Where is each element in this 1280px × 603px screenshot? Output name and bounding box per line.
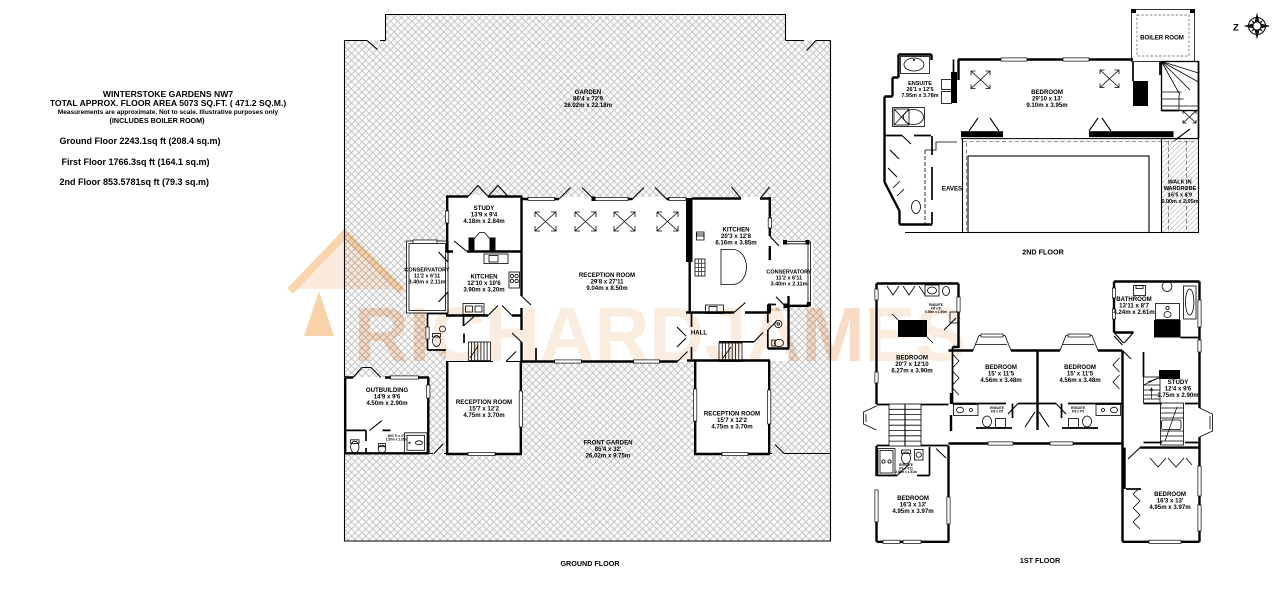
svg-text:6.27m x 3.90m: 6.27m x 3.90m	[891, 368, 933, 375]
svg-text:1ST FLOOR: 1ST FLOOR	[1020, 556, 1061, 565]
svg-text:1.50m x 1.35m: 1.50m x 1.35m	[386, 438, 408, 442]
svg-text:9.04m x 8.50m: 9.04m x 8.50m	[586, 285, 628, 292]
svg-text:BOILER ROOM: BOILER ROOM	[1140, 35, 1184, 42]
svg-text:26.02m x 22.18m: 26.02m x 22.18m	[564, 102, 613, 109]
svg-text:First Floor 1766.3sq ft (164.1: First Floor 1766.3sq ft (164.1 sq.m)	[62, 157, 210, 167]
svg-text:WARDROBE: WARDROBE	[1164, 186, 1197, 192]
svg-text:3.40m x 2.11m: 3.40m x 2.11m	[770, 282, 807, 288]
svg-text:7.95m x 3.78m: 7.95m x 3.78m	[901, 93, 938, 99]
svg-text:0.50m x 1.50m: 0.50m x 1.50m	[925, 310, 947, 314]
svg-text:3.75m x 2.90m: 3.75m x 2.90m	[1157, 392, 1199, 399]
svg-text:WALK IN: WALK IN	[1168, 180, 1191, 186]
svg-text:GROUND FLOOR: GROUND FLOOR	[560, 559, 620, 568]
svg-text:3.40m x 2.11m: 3.40m x 2.11m	[408, 280, 445, 286]
svg-text:Measurements are approximate.: Measurements are approximate. Not to sca…	[58, 109, 279, 116]
svg-text:2.80m x 1.51m: 2.80m x 1.51m	[895, 470, 917, 474]
svg-text:4.75m x 3.70m: 4.75m x 3.70m	[463, 412, 505, 419]
svg-text:Z: Z	[1233, 23, 1239, 34]
svg-text:(INCLUDES BOILER ROOM): (INCLUDES BOILER ROOM)	[109, 116, 205, 125]
svg-text:9.10m x 3.95m: 9.10m x 3.95m	[1026, 102, 1068, 109]
svg-text:4.50m x 2.90m: 4.50m x 2.90m	[366, 400, 408, 407]
svg-text:5.00m x 2.05m: 5.00m x 2.05m	[1161, 199, 1198, 205]
svg-text:Ground Floor 2243.1sq ft (208.: Ground Floor 2243.1sq ft (208.4 sq.m)	[60, 136, 221, 146]
svg-text:4.56m x 3.48m: 4.56m x 3.48m	[980, 377, 1022, 384]
svg-text:2nd Floor 853.5781sq ft (79.3: 2nd Floor 853.5781sq ft (79.3 sq.m)	[60, 177, 210, 187]
svg-text:16'5 x 6'9: 16'5 x 6'9	[1168, 193, 1192, 199]
svg-text:4.75m x 3.70m: 4.75m x 3.70m	[711, 424, 753, 431]
svg-text:6'8 x 4'5: 6'8 x 4'5	[1072, 410, 1084, 414]
svg-text:TOTAL APPROX. FLOOR AREA 5073: TOTAL APPROX. FLOOR AREA 5073 SQ.FT. ( 4…	[50, 98, 287, 108]
svg-text:4.95m x 3.97m: 4.95m x 3.97m	[892, 508, 934, 515]
svg-text:EAVES: EAVES	[942, 186, 962, 193]
svg-text:6.16m x 3.85m: 6.16m x 3.85m	[715, 240, 757, 247]
svg-text:3.90m x 3.20m: 3.90m x 3.20m	[463, 287, 505, 294]
svg-text:2ND FLOOR: 2ND FLOOR	[1022, 248, 1064, 257]
svg-text:HALL: HALL	[691, 330, 708, 337]
svg-text:4.95m x 3.97m: 4.95m x 3.97m	[1149, 504, 1191, 511]
svg-text:4.56m x 3.48m: 4.56m x 3.48m	[1059, 377, 1101, 384]
svg-text:6'8 x 4'5: 6'8 x 4'5	[991, 410, 1003, 414]
svg-text:26.02m x 9.75m: 26.02m x 9.75m	[586, 453, 631, 460]
svg-text:4.24m x 2.61m: 4.24m x 2.61m	[1113, 309, 1155, 316]
svg-text:4.18m x 2.84m: 4.18m x 2.84m	[463, 218, 505, 225]
